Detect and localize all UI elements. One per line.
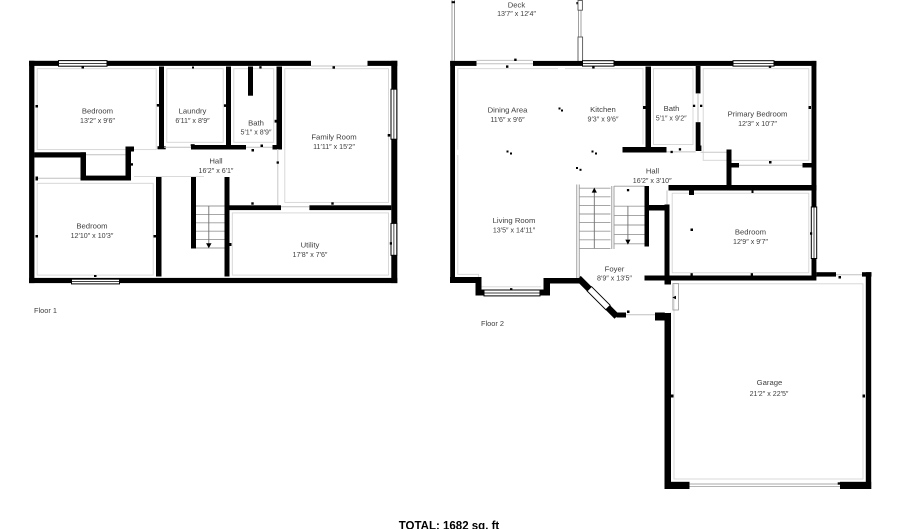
svg-text:16′2″ x 6′1″: 16′2″ x 6′1″ (199, 167, 234, 175)
svg-text:Floor 2: Floor 2 (481, 319, 504, 328)
svg-text:12′3″ x 10′7″: 12′3″ x 10′7″ (738, 120, 777, 128)
svg-text:Family Room: Family Room (311, 133, 356, 142)
svg-text:Bath: Bath (664, 104, 680, 113)
svg-text:16′2″ x 3′10″: 16′2″ x 3′10″ (633, 177, 672, 185)
svg-text:TOTAL: 1682 sq. ft: TOTAL: 1682 sq. ft (399, 521, 500, 529)
svg-text:Bedroom: Bedroom (82, 107, 113, 116)
svg-text:Bath: Bath (248, 119, 264, 128)
svg-text:Laundry: Laundry (179, 107, 207, 116)
svg-text:Dining Area: Dining Area (488, 106, 528, 115)
svg-text:Foyer: Foyer (605, 264, 625, 273)
svg-text:Deck: Deck (508, 0, 526, 9)
svg-text:12′9″ x 9′7″: 12′9″ x 9′7″ (733, 238, 768, 246)
svg-text:Bedroom: Bedroom (76, 222, 107, 231)
svg-text:Kitchen: Kitchen (590, 105, 616, 114)
svg-text:6′11″ x 8′9″: 6′11″ x 8′9″ (175, 117, 210, 125)
svg-text:Living Room: Living Room (493, 216, 536, 225)
svg-text:Bedroom: Bedroom (735, 228, 766, 237)
svg-text:Primary Bedroom: Primary Bedroom (728, 110, 788, 119)
svg-text:11′11″ x 15′2″: 11′11″ x 15′2″ (313, 143, 355, 151)
svg-text:13′5″ x 14′11″: 13′5″ x 14′11″ (493, 226, 536, 234)
svg-text:Hall: Hall (646, 167, 660, 176)
svg-text:Garage: Garage (757, 378, 783, 387)
svg-text:5′1″ x 9′2″: 5′1″ x 9′2″ (656, 115, 687, 123)
svg-text:Hall: Hall (209, 157, 223, 166)
svg-text:12′10″ x 10′3″: 12′10″ x 10′3″ (71, 232, 114, 240)
svg-text:8′9″ x 13′5″: 8′9″ x 13′5″ (597, 275, 632, 283)
svg-text:17′8″ x 7′6″: 17′8″ x 7′6″ (293, 251, 328, 259)
svg-text:9′3″ x 9′6″: 9′3″ x 9′6″ (588, 115, 619, 123)
svg-text:11′6″ x 9′6″: 11′6″ x 9′6″ (490, 116, 525, 124)
svg-text:21′2″ x 22′5″: 21′2″ x 22′5″ (750, 390, 789, 398)
svg-text:13′2″ x 9′6″: 13′2″ x 9′6″ (80, 117, 115, 125)
svg-text:5′1″ x 8′9″: 5′1″ x 8′9″ (241, 129, 272, 137)
svg-text:Floor 1: Floor 1 (34, 306, 57, 315)
svg-text:Utility: Utility (301, 241, 320, 250)
svg-text:13′7″ x 12′4″: 13′7″ x 12′4″ (497, 10, 536, 18)
